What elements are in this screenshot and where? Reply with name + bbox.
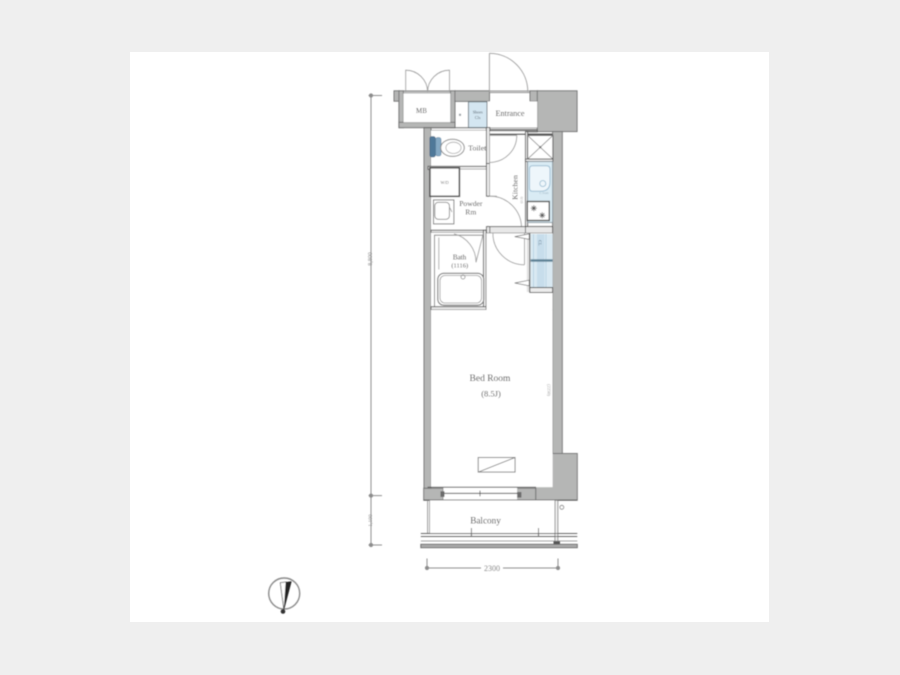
svg-text:(2.2): (2.2) [520, 197, 524, 204]
svg-text:(8.5J): (8.5J) [481, 389, 501, 399]
svg-text:Rm: Rm [465, 208, 476, 217]
svg-text:C.Stub: C.Stub [539, 191, 549, 195]
svg-text:8,800: 8,800 [368, 252, 374, 266]
svg-text:Bath: Bath [453, 254, 467, 262]
svg-text:2300: 2300 [484, 564, 500, 573]
svg-text:MB: MB [416, 107, 427, 115]
svg-text:W/D: W/D [441, 180, 449, 185]
svg-text:Toilet: Toilet [468, 143, 487, 152]
svg-text:Balcony: Balcony [470, 516, 501, 526]
svg-text:CL: CL [538, 240, 543, 246]
svg-text:(2250): (2250) [546, 384, 551, 396]
svg-text:Bed Room: Bed Room [470, 374, 512, 384]
svg-text:Entrance: Entrance [495, 109, 524, 118]
svg-text:Shoes: Shoes [473, 110, 483, 115]
svg-text:Cls: Cls [475, 115, 481, 120]
svg-text:Kitchen: Kitchen [511, 175, 520, 200]
svg-text:1,100: 1,100 [368, 514, 374, 526]
svg-text:(1116): (1116) [451, 262, 468, 269]
